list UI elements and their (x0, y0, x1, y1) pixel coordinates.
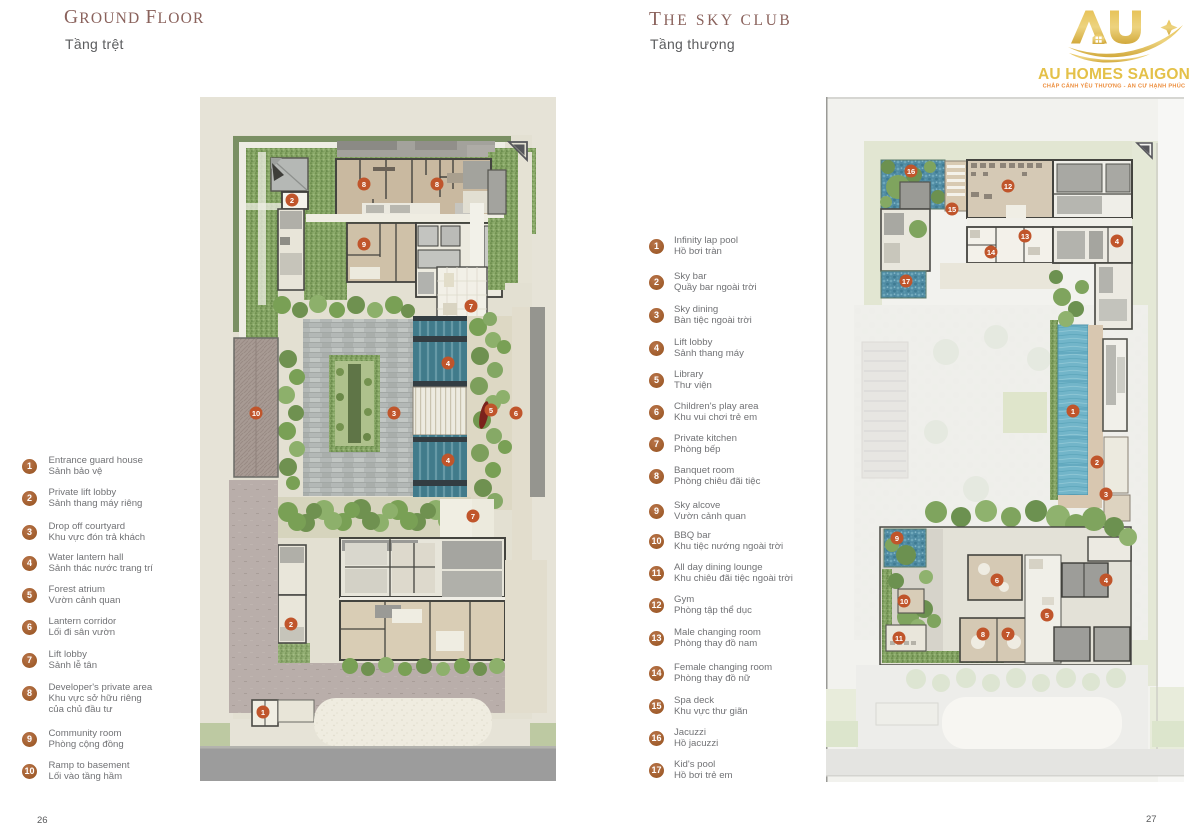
svg-text:13: 13 (1021, 232, 1029, 241)
svg-text:14: 14 (987, 248, 996, 257)
svg-text:7: 7 (469, 302, 473, 311)
svg-text:2: 2 (1095, 458, 1099, 467)
svg-text:AU HOMES SAIGON: AU HOMES SAIGON (1038, 66, 1190, 83)
svg-text:2: 2 (290, 196, 294, 205)
svg-text:12: 12 (1004, 182, 1012, 191)
svg-text:2: 2 (289, 620, 293, 629)
svg-text:8: 8 (981, 630, 985, 639)
svg-text:7: 7 (1006, 630, 1010, 639)
svg-text:11: 11 (895, 634, 903, 643)
svg-text:16: 16 (907, 167, 915, 176)
svg-text:CHẮP CÁNH YÊU THƯƠNG - AN CƯ H: CHẮP CÁNH YÊU THƯƠNG - AN CƯ HẠNH PHÚC (1043, 82, 1186, 90)
svg-text:9: 9 (895, 534, 899, 543)
svg-text:3: 3 (1104, 490, 1108, 499)
svg-text:8: 8 (435, 180, 439, 189)
svg-text:6: 6 (514, 409, 518, 418)
svg-text:8: 8 (362, 180, 366, 189)
svg-text:17: 17 (902, 277, 910, 286)
svg-text:5: 5 (1045, 611, 1049, 620)
svg-text:6: 6 (995, 576, 999, 585)
svg-text:5: 5 (489, 406, 493, 415)
svg-text:10: 10 (252, 409, 260, 418)
svg-text:1: 1 (1071, 407, 1075, 416)
svg-text:10: 10 (900, 597, 908, 606)
svg-text:1: 1 (261, 708, 265, 717)
svg-text:9: 9 (362, 240, 366, 249)
svg-text:3: 3 (392, 409, 396, 418)
svg-text:7: 7 (471, 512, 475, 521)
svg-text:15: 15 (948, 205, 956, 214)
